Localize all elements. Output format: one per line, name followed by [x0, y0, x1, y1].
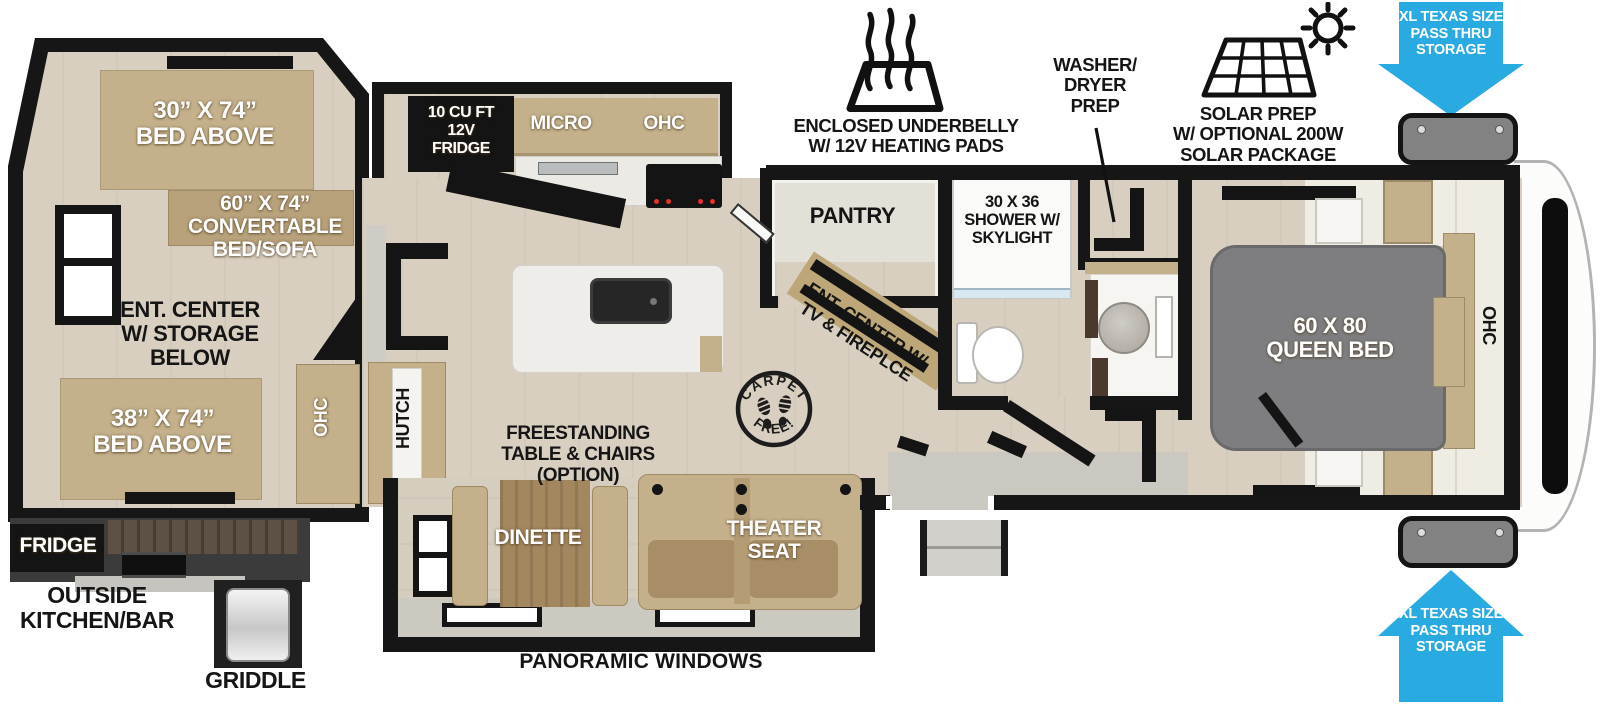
pass-thru-top-label: XL TEXAS SIZE PASS THRU STORAGE: [1378, 9, 1524, 59]
theater-cupholder-2: [736, 484, 747, 495]
svg-text:FREE!: FREE!: [751, 414, 797, 436]
shower-glass: [954, 288, 1070, 298]
main-top-wall: [766, 165, 1518, 180]
entry-opening: [892, 495, 988, 510]
solar-panel-icon: [1192, 2, 1362, 105]
vanity-sink-bowl: [1098, 302, 1150, 354]
vanity-counter-edge: [1085, 262, 1180, 274]
screw-icon: [1495, 528, 1504, 537]
cooktop-knob-4: [710, 199, 715, 204]
queen-bed-label: 60 X 80 QUEEN BED: [1240, 314, 1420, 362]
griddle-appliance: [226, 588, 290, 662]
hutch-label: HUTCH: [394, 388, 414, 449]
entry-steps: [920, 520, 1008, 576]
outside-fridge-label: FRIDGE: [12, 534, 104, 557]
cooktop-knob-2: [666, 199, 671, 204]
bunk-ent-center-label: ENT. CENTER W/ STORAGE BELOW: [95, 298, 285, 371]
island-sink: [590, 278, 672, 324]
entry-step-edge: [927, 546, 1001, 549]
storage-door-top: [1398, 113, 1518, 165]
island-end-panel: [700, 336, 722, 372]
bathroom-left-wall: [938, 165, 952, 410]
vanity-window: [1155, 296, 1173, 358]
solar-prep-label: SOLAR PREP W/ OPTIONAL 200W SOLAR PACKAG…: [1148, 104, 1368, 165]
pass-thru-arrow-top: XL TEXAS SIZE PASS THRU STORAGE: [1378, 2, 1524, 116]
outside-kitchen-woodtop: [105, 520, 300, 554]
cooktop-knob-3: [698, 199, 703, 204]
storage-door-bottom: [1398, 516, 1518, 568]
bed-center-shelf: [1433, 297, 1465, 387]
kitchen-ohc-label: OHC: [628, 114, 700, 135]
bunk-bed-top-label: 30” X 74” BED ABOVE: [95, 98, 315, 151]
island-faucet: [650, 298, 657, 305]
main-bottom-wall: [994, 495, 1518, 510]
vanity-wood-strip-2: [1092, 358, 1108, 400]
slide-window-left-bar: [416, 552, 450, 558]
pantry-label: PANTRY: [790, 204, 915, 228]
wd-closet-bracket-h: [1094, 238, 1144, 251]
screw-icon: [1417, 125, 1426, 134]
underbelly-label: ENCLOSED UNDERBELLY W/ 12V HEATING PADS: [770, 116, 1042, 157]
dinette-slide-left-wall: [383, 478, 398, 652]
washer-dryer-pointer: [1092, 124, 1120, 226]
cooktop-knob-1: [654, 199, 659, 204]
washer-dryer-label: WASHER/ DRYER PREP: [1035, 55, 1155, 116]
carpet-free-badge: CARPET FREE!: [733, 368, 815, 450]
kitchen-sink-strip: [538, 162, 618, 175]
shower-label: 30 X 36 SHOWER W/ SKYLIGHT: [953, 193, 1071, 247]
bunk-window-bar: [58, 258, 118, 266]
heating-pad-icon: [828, 0, 948, 113]
bathroom-bottom-wall-left: [938, 396, 1008, 410]
bedroom-dresser-top: [1315, 198, 1363, 244]
front-cap-window: [1542, 198, 1568, 494]
griddle-label: GRIDDLE: [193, 668, 318, 693]
open-shelf-notch: [401, 259, 448, 336]
bunk-bed-bottom-label: 38” X 74” BED ABOVE: [65, 406, 260, 459]
pass-thru-arrow-bottom: XL TEXAS SIZE PASS THRU STORAGE: [1378, 570, 1524, 702]
screw-icon: [1417, 528, 1426, 537]
dinette-label: DINETTE: [483, 526, 593, 549]
outside-kitchen-label: OUTSIDE KITCHEN/BAR: [2, 583, 192, 634]
floorplan-diagram: 30” X 74” BED ABOVE 60” X 74” CONVERTABL…: [0, 0, 1600, 708]
bunk-vent-bottom: [125, 492, 235, 504]
theater-cupholder-4: [840, 484, 851, 495]
bunk-ohc-label: OHC: [312, 398, 332, 437]
main-right-wall: [1504, 165, 1520, 510]
pass-thru-bottom-label: XL TEXAS SIZE PASS THRU STORAGE: [1378, 606, 1524, 656]
theater-label: THEATER SEAT: [700, 517, 848, 563]
kitchen-fridge-label: 10 CU FT 12V FRIDGE: [408, 104, 514, 158]
shelf-backing: [366, 225, 386, 365]
free-label: FREE!: [751, 414, 797, 436]
toilet-bowl: [972, 326, 1024, 384]
bunk-convertible-label: 60” X 74” CONVERTABLE BED/SOFA: [150, 192, 380, 261]
screw-icon: [1495, 125, 1504, 134]
theater-cupholder-3: [736, 504, 747, 515]
micro-label: MICRO: [516, 114, 606, 135]
bedroom-left-wall: [1178, 165, 1192, 420]
panoramic-label: PANORAMIC WINDOWS: [515, 650, 767, 673]
bedroom-wardrobe-top: [1383, 180, 1433, 244]
bunk-vent-top: [167, 56, 293, 69]
vanity-wood-strip-1: [1085, 280, 1098, 338]
dinette-bench-right: [592, 486, 628, 606]
hall-closet-v: [1142, 408, 1156, 482]
outside-grill: [122, 552, 186, 578]
freestanding-label: FREESTANDING TABLE & CHAIRS (OPTION): [478, 424, 678, 487]
bathroom-inner-wall-v: [1078, 165, 1090, 265]
bedroom-ohc-label: OHC: [1478, 306, 1498, 345]
